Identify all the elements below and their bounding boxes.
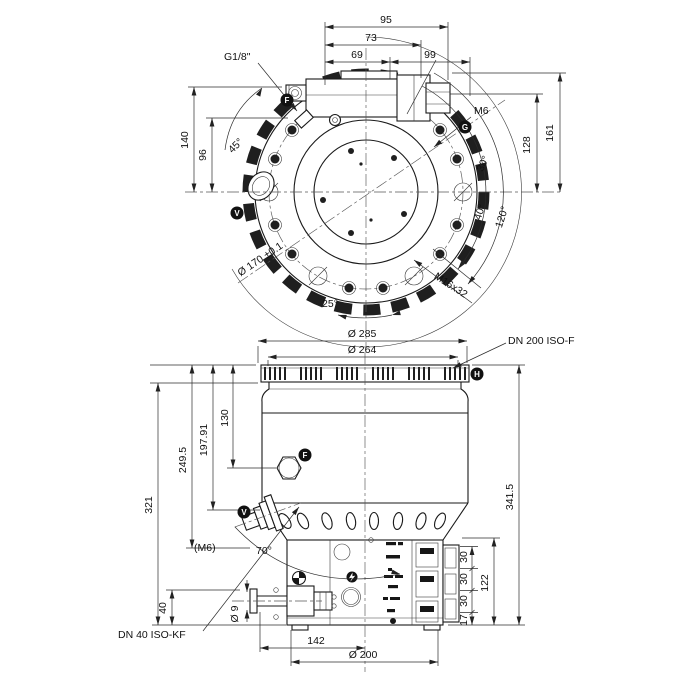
dim-17: 17 [458, 614, 470, 626]
dim-dia200: Ø 200 [349, 649, 378, 661]
dim-30c: 30 [458, 595, 470, 607]
port-marker-f-side: F [299, 449, 312, 462]
side-view: Ø 285 Ø 264 DN 200 ISO-F [118, 328, 575, 672]
svg-text:V: V [234, 209, 240, 218]
dim-122: 122 [479, 574, 491, 592]
dim-2495: 249.5 [177, 447, 189, 473]
purge-plug-hex [277, 457, 301, 479]
dim-3415: 341.5 [504, 484, 516, 510]
dim-dia9: Ø 9 [229, 605, 241, 622]
dim-95: 95 [380, 14, 392, 26]
port-marker-g-top: G [459, 121, 472, 134]
svg-text:G1/8": G1/8" [224, 51, 251, 63]
label-m6-side: (M6) [194, 542, 216, 554]
drawing-page: 95 73 69 99 161 128 140 96 [0, 0, 700, 700]
svg-text:V: V [241, 508, 247, 517]
svg-text:70°: 70° [256, 545, 272, 557]
dim-96: 96 [197, 149, 209, 161]
dim-69: 69 [351, 49, 363, 61]
svg-text:DN 40 ISO-KF: DN 40 ISO-KF [118, 629, 186, 641]
top-view: 95 73 69 99 161 128 140 96 [179, 14, 566, 350]
dim-130: 130 [219, 409, 231, 427]
dim-73: 73 [365, 32, 377, 44]
dim-140: 140 [179, 131, 191, 149]
dim-dia264: Ø 264 [348, 344, 377, 356]
angle-120: 120° [493, 205, 511, 229]
dim-dia285-dia264: Ø 285 Ø 264 [258, 328, 467, 366]
dim-30a: 30 [458, 551, 470, 563]
fore-vacuum-symbol [293, 572, 306, 585]
port-marker-v-side: V [238, 506, 251, 519]
port-marker-v-top: V [231, 207, 244, 220]
port-marker-f-top: F [281, 94, 294, 107]
dim-99: 99 [424, 49, 436, 61]
dim-dia285: Ø 285 [348, 328, 377, 340]
dim-321: 321 [143, 496, 155, 514]
dim-142: 142 [307, 635, 325, 647]
svg-text:G: G [462, 123, 468, 132]
pump-drawing-canvas: 95 73 69 99 161 128 140 96 [0, 0, 700, 700]
svg-text:M6: M6 [474, 105, 489, 117]
port-marker-h-side: H [471, 368, 484, 381]
svg-text:F: F [303, 451, 308, 460]
angle-30: 30° [474, 154, 492, 173]
angle-25: 25° [322, 298, 338, 310]
dim-161: 161 [544, 124, 556, 142]
svg-text:DN 200 ISO-F: DN 200 ISO-F [508, 335, 575, 347]
dim-128: 128 [521, 136, 533, 154]
dim-30b: 30 [458, 573, 470, 585]
dim-40: 40 [157, 602, 169, 614]
dim-left-heights: 130 197.91 249.5 321 40 [143, 365, 286, 625]
power-warning-icon [347, 572, 358, 583]
svg-text:F: F [285, 96, 290, 105]
svg-text:H: H [474, 370, 480, 379]
angle-45: 45° [226, 136, 246, 156]
dim-19791: 197.91 [198, 424, 210, 456]
